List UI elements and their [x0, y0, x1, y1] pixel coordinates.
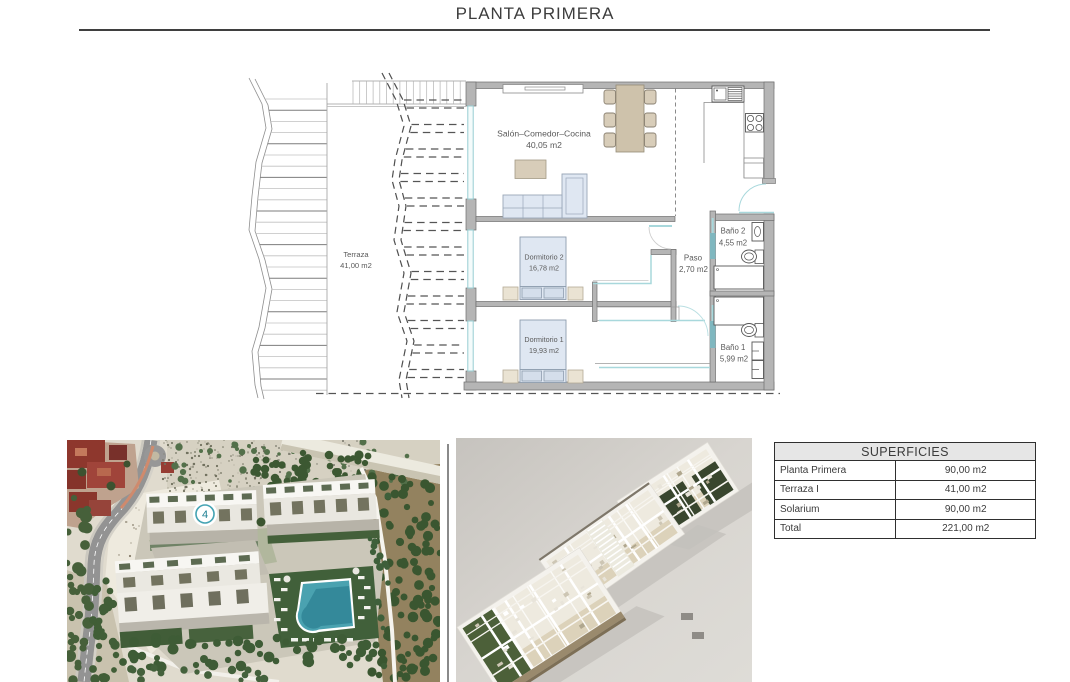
svg-text:2,70 m2: 2,70 m2: [679, 265, 708, 274]
svg-text:19,93 m2: 19,93 m2: [529, 346, 559, 355]
svg-text:4,55 m2: 4,55 m2: [719, 239, 747, 248]
svg-text:Dormitorio 1: Dormitorio 1: [524, 335, 563, 344]
svg-text:Dormitorio 2: Dormitorio 2: [524, 253, 563, 262]
svg-text:Baño 2: Baño 2: [721, 227, 746, 236]
svg-text:Baño 1: Baño 1: [721, 343, 746, 352]
svg-text:Paso: Paso: [684, 254, 703, 263]
svg-text:4: 4: [202, 509, 208, 521]
svg-text:Salón–Comedor–Cocina: Salón–Comedor–Cocina: [497, 129, 591, 139]
svg-text:41,00 m2: 41,00 m2: [340, 261, 372, 270]
svg-text:40,05 m2: 40,05 m2: [526, 140, 562, 150]
svg-text:Terraza: Terraza: [343, 250, 369, 259]
svg-text:5,99 m2: 5,99 m2: [720, 355, 748, 364]
svg-text:16,78 m2: 16,78 m2: [529, 264, 559, 273]
